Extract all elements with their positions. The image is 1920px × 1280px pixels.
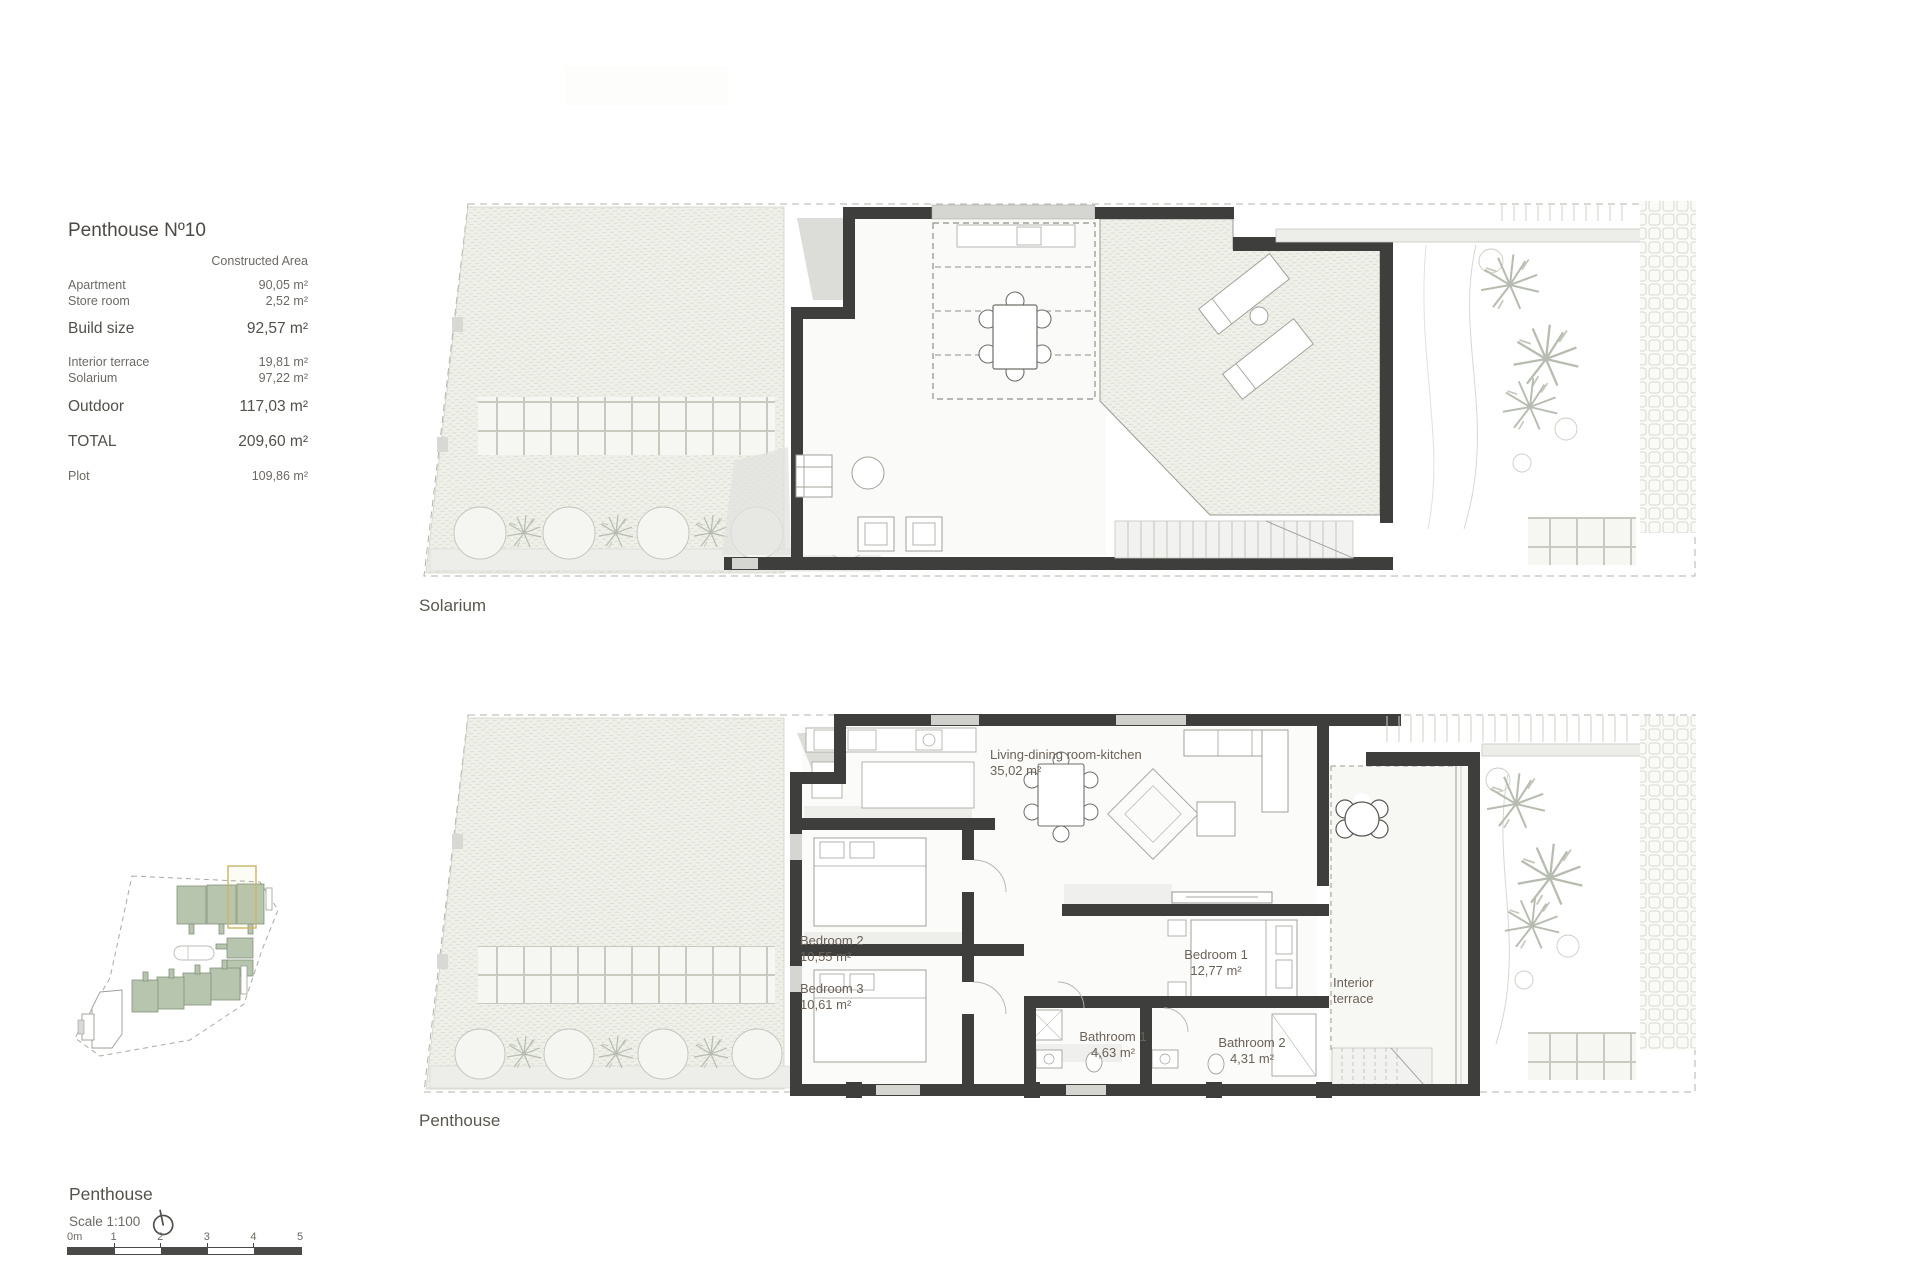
scale-text: Scale 1:100	[69, 1214, 140, 1229]
highlighted-unit	[228, 866, 256, 928]
pool	[174, 946, 214, 960]
solarium-caption: Solarium	[419, 596, 486, 616]
solarium-floorplan	[416, 199, 1696, 584]
info-row-total: TOTAL 209,60 m²	[68, 433, 308, 451]
solarium-floorplan-drawing	[416, 199, 1696, 584]
site-plan-drawing	[70, 858, 280, 1086]
room-label-bedroom3: Bedroom 3 10,61 m²	[800, 964, 920, 1031]
site-plan-minimap	[70, 858, 280, 1091]
kitchen	[806, 728, 976, 808]
info-row-storeroom: Store room 2,52 m²	[68, 294, 308, 308]
faint-print-artifact	[565, 66, 728, 106]
room-label-bathroom1: Bathroom 1 4,63 m²	[1048, 1012, 1178, 1079]
bedroom2-bed	[814, 838, 926, 926]
constructed-area-header: Constructed Area	[68, 254, 308, 268]
penthouse-floorplan: Living-dining room-kitchen 35,02 m² Bedr…	[416, 714, 1696, 1100]
room-label-interior-terrace: Interior terrace	[1333, 958, 1395, 1008]
info-row-outdoor: Outdoor 117,03 m²	[68, 398, 308, 416]
stairs	[1115, 521, 1353, 558]
info-row-interior-terrace: Interior terrace 19,81 m²	[68, 355, 308, 369]
scale-bar-segments	[67, 1247, 302, 1255]
page-title: Penthouse Nº10	[68, 220, 206, 242]
room-label-living: Living-dining room-kitchen 35,02 m²	[990, 730, 1210, 797]
lower-buildings	[132, 960, 247, 1012]
upper-buildings	[177, 884, 272, 934]
info-row-plot: Plot 109,86 m²	[68, 469, 308, 483]
lower-left-units	[78, 990, 122, 1048]
info-row-solarium: Solarium 97,22 m²	[68, 371, 308, 385]
scale-bar: 0m 1 2 3 4 5	[67, 1231, 301, 1261]
scale-bar-labels: 0m 1 2 3 4 5	[67, 1231, 301, 1244]
room-label-bedroom1: Bedroom 1 12,77 m²	[1126, 930, 1306, 997]
footer-title: Penthouse	[69, 1184, 153, 1205]
penthouse-caption: Penthouse	[419, 1111, 500, 1131]
info-row-apartment: Apartment 90,05 m²	[68, 278, 308, 292]
info-row-build-size: Build size 92,57 m²	[68, 320, 308, 338]
room-label-bathroom2: Bathroom 2 4,31 m²	[1192, 1018, 1312, 1085]
